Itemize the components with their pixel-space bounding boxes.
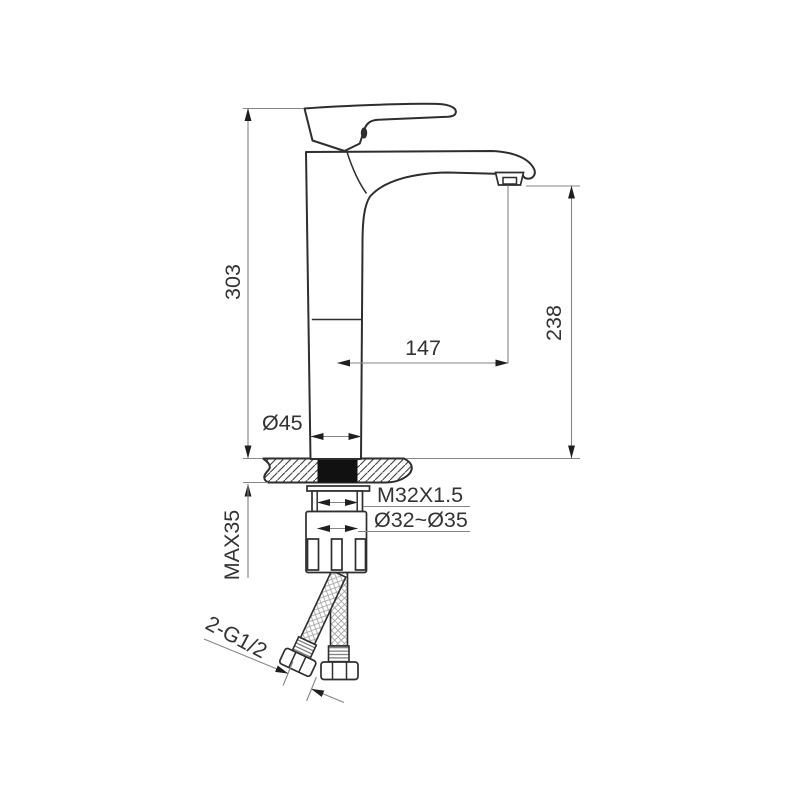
- nut-slot: [332, 539, 343, 570]
- handle-pivot: [361, 127, 367, 138]
- dim-label-spout-reach: 147: [405, 336, 441, 360]
- hose-hex-nut: [321, 662, 358, 680]
- dim-label-spout-height: 238: [542, 305, 566, 341]
- drawing-canvas: 303 MAX35 238 147 Ø45 M32X1.5 Ø32~Ø35: [0, 0, 800, 800]
- body-outline: [306, 151, 535, 459]
- faucet-body: [306, 151, 535, 459]
- threaded-shank: [312, 491, 363, 512]
- dim-label-mounting-hole: Ø32~Ø35: [374, 508, 468, 532]
- faucet-handle: [305, 104, 456, 151]
- faucet-shank-through-hole: [318, 460, 358, 483]
- faucet-technical-drawing: 303 MAX35 238 147 Ø45 M32X1.5 Ø32~Ø35: [0, 0, 800, 800]
- aerator: [496, 173, 524, 186]
- dim-label-overall-height: 303: [221, 264, 245, 300]
- dim-overall-height: 303: [221, 109, 304, 459]
- countertop-section: [263, 459, 412, 483]
- dim-label-body-diameter: Ø45: [262, 411, 303, 435]
- handle-lever: [305, 104, 456, 151]
- hose-ferrule: [329, 646, 350, 662]
- nut-slot: [308, 539, 319, 570]
- dim-max-deck-thickness: MAX35: [220, 459, 268, 581]
- dim-label-shank-thread: M32X1.5: [377, 483, 463, 507]
- dim-label-hose-thread: 2-G1/2: [202, 611, 271, 663]
- dim-label-max-deck: MAX35: [220, 510, 244, 581]
- dim-spout-height: 238: [406, 186, 580, 459]
- mounting-hardware: [306, 486, 370, 573]
- nut-slot: [356, 539, 366, 570]
